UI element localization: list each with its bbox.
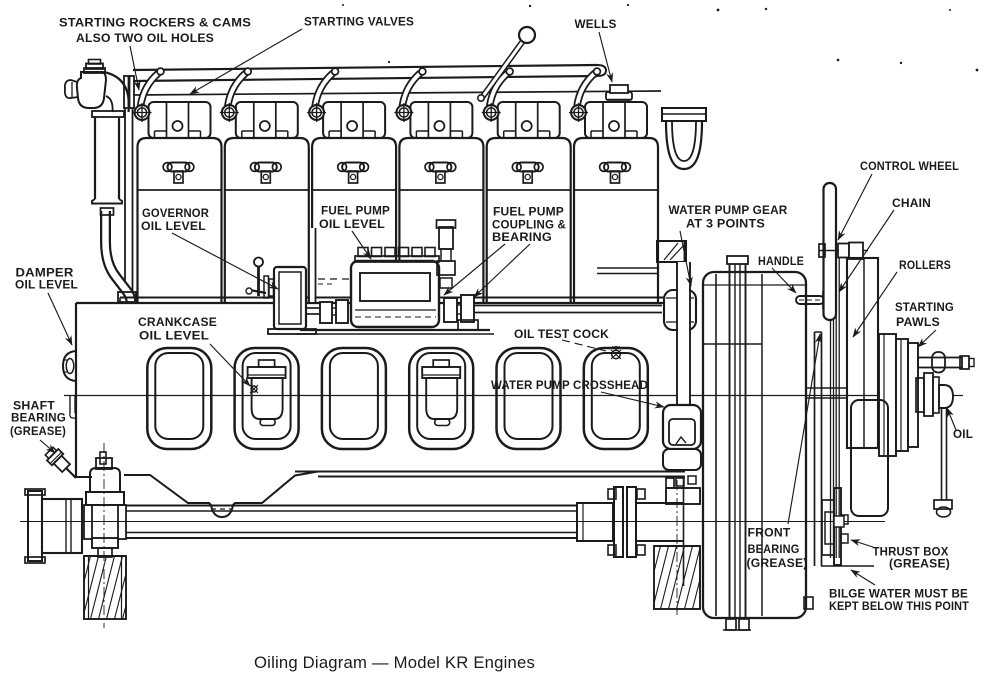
svg-text:WATER PUMP GEAR: WATER PUMP GEAR (669, 203, 788, 217)
svg-text:Oiling Diagram — Model KR E: Oiling Diagram — Model KR Engines (254, 653, 535, 672)
svg-text:PAWLS: PAWLS (896, 315, 940, 329)
svg-text:OIL LEVEL: OIL LEVEL (15, 278, 78, 292)
svg-text:BEARING: BEARING (492, 230, 552, 244)
svg-text:WATER PUMP CROSSHEAD: WATER PUMP CROSSHEAD (491, 378, 648, 392)
svg-text:KEPT BELOW THIS POINT: KEPT BELOW THIS POINT (829, 599, 969, 613)
svg-text:ALSO TWO OIL HOLES: ALSO TWO OIL HOLES (76, 31, 214, 45)
svg-text:HANDLE: HANDLE (758, 254, 804, 268)
svg-text:FUEL PUMP: FUEL PUMP (321, 204, 390, 218)
svg-text:BEARING: BEARING (748, 542, 800, 556)
svg-text:FUEL PUMP: FUEL PUMP (493, 205, 564, 219)
svg-text:CRANKCASE: CRANKCASE (138, 315, 217, 329)
svg-text:WELLS: WELLS (575, 17, 617, 31)
svg-text:(GREASE): (GREASE) (747, 556, 808, 570)
svg-text:OIL LEVEL: OIL LEVEL (141, 219, 206, 233)
svg-text:BEARING: BEARING (11, 411, 66, 425)
svg-text:ROLLERS: ROLLERS (899, 258, 951, 272)
svg-text:CHAIN: CHAIN (892, 196, 931, 210)
svg-text:(GREASE): (GREASE) (889, 557, 950, 571)
svg-text:CONTROL WHEEL: CONTROL WHEEL (860, 159, 959, 173)
svg-text:GOVERNOR: GOVERNOR (142, 206, 209, 220)
svg-text:OIL TEST COCK: OIL TEST COCK (514, 327, 609, 341)
svg-text:AT 3 POINTS: AT 3 POINTS (686, 217, 765, 231)
svg-text:OIL LEVEL: OIL LEVEL (139, 329, 209, 343)
svg-text:STARTING: STARTING (895, 300, 954, 314)
svg-text:OIL LEVEL: OIL LEVEL (319, 217, 385, 231)
svg-text:(GREASE): (GREASE) (10, 424, 66, 438)
svg-text:FRONT: FRONT (748, 526, 791, 540)
svg-text:STARTING ROCKERS & CAMS: STARTING ROCKERS & CAMS (59, 16, 251, 30)
svg-text:STARTING VALVES: STARTING VALVES (304, 15, 414, 29)
